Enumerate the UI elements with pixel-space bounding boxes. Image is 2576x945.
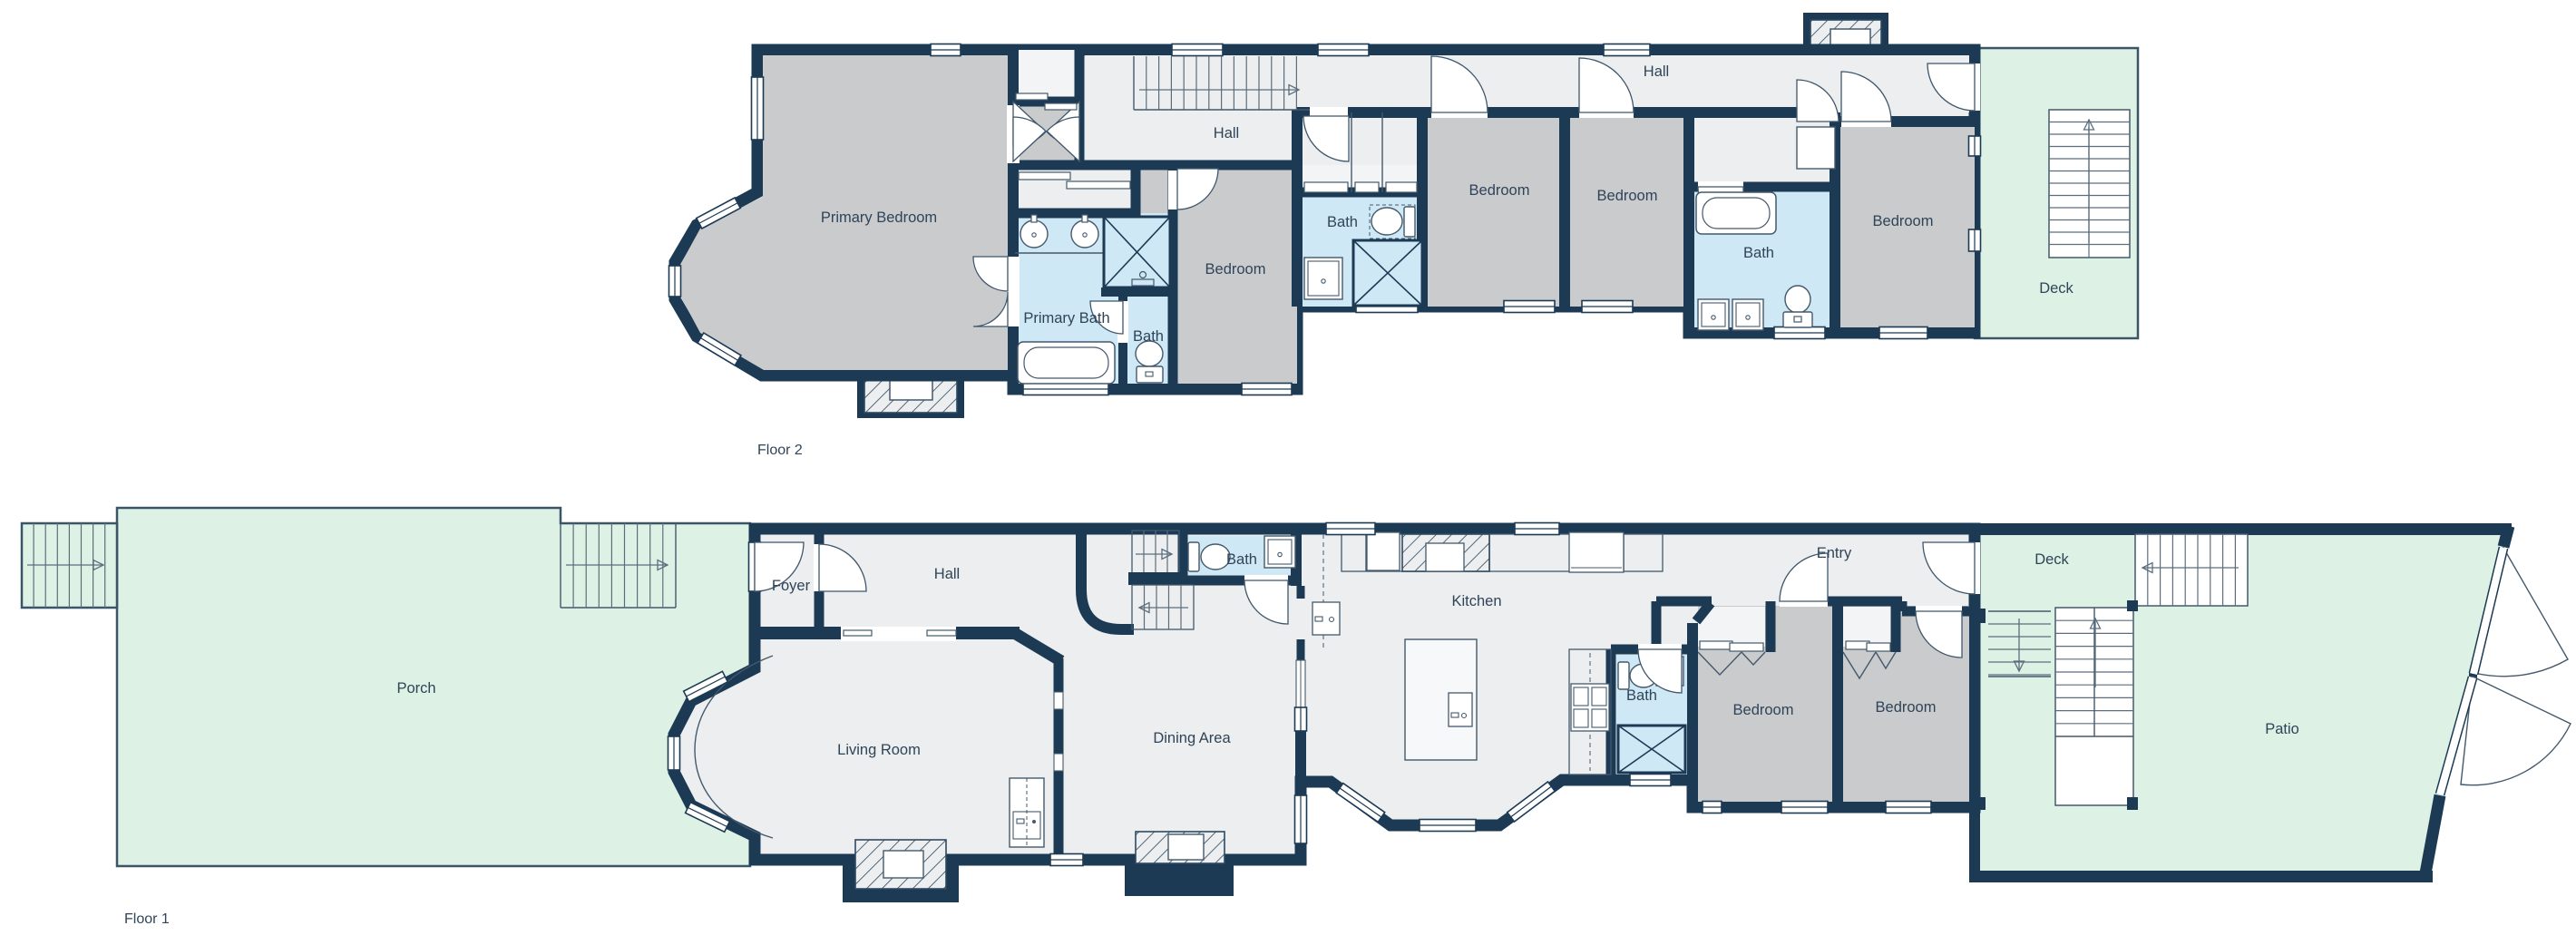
- svg-text:Bedroom: Bedroom: [1205, 261, 1266, 278]
- svg-text:Bath: Bath: [1743, 245, 1774, 261]
- svg-text:Primary Bedroom: Primary Bedroom: [821, 209, 937, 226]
- svg-text:Hall: Hall: [1644, 63, 1669, 80]
- svg-text:Patio: Patio: [2265, 721, 2299, 737]
- svg-text:Primary Bath: Primary Bath: [1023, 310, 1109, 326]
- svg-text:Deck: Deck: [2039, 280, 2073, 297]
- svg-text:Hall: Hall: [1214, 125, 1239, 141]
- svg-text:Bedroom: Bedroom: [1469, 182, 1530, 199]
- svg-text:Bath: Bath: [1133, 328, 1164, 345]
- svg-text:Bedroom: Bedroom: [1873, 213, 1934, 229]
- svg-text:Bath: Bath: [1626, 687, 1657, 704]
- svg-text:Foyer: Foyer: [772, 578, 811, 594]
- svg-text:Floor 1: Floor 1: [124, 911, 170, 927]
- svg-text:Bedroom: Bedroom: [1733, 702, 1794, 718]
- svg-text:Deck: Deck: [2034, 551, 2069, 568]
- svg-text:Bath: Bath: [1226, 551, 1257, 568]
- svg-text:Floor 2: Floor 2: [757, 443, 803, 458]
- svg-text:Dining Area: Dining Area: [1153, 730, 1231, 746]
- svg-text:Bath: Bath: [1327, 214, 1358, 230]
- svg-text:Entry: Entry: [1817, 545, 1852, 561]
- svg-text:Hall: Hall: [934, 566, 960, 582]
- svg-text:Kitchen: Kitchen: [1451, 593, 1501, 609]
- svg-text:Bedroom: Bedroom: [1597, 188, 1658, 204]
- svg-text:Porch: Porch: [396, 680, 435, 697]
- svg-text:Living Room: Living Room: [837, 742, 921, 758]
- svg-text:Bedroom: Bedroom: [1876, 699, 1937, 716]
